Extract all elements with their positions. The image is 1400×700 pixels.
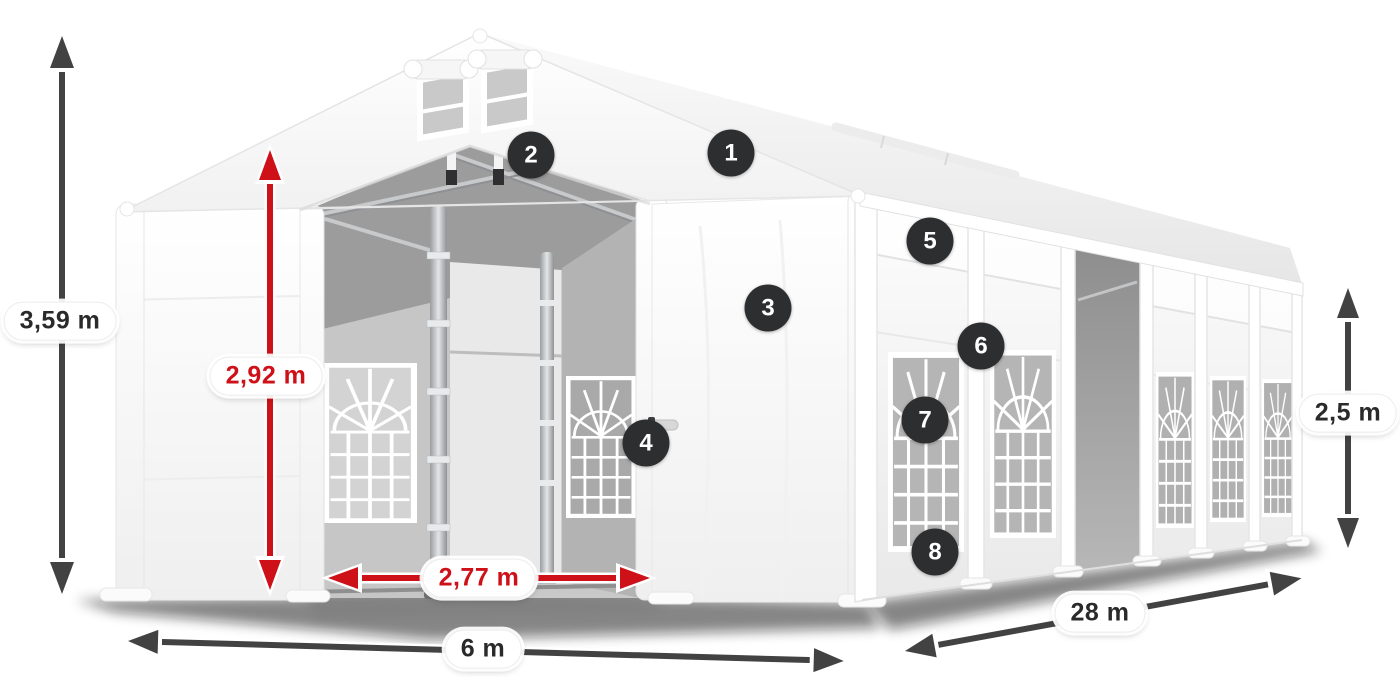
dimension-label-front-width: 6 m	[445, 630, 522, 669]
callout-badge-7: 7	[902, 397, 949, 444]
tent-dimension-diagram: 3,59 m 2,92 m 2,77 m 6 m 28 m 2,5 m 1 2 …	[0, 0, 1400, 700]
callout-badge-6: 6	[958, 323, 1005, 370]
callout-badge-2: 2	[508, 132, 555, 179]
dimension-label-entrance-width: 2,77 m	[423, 559, 536, 598]
dimension-label-side-length: 28 m	[1055, 594, 1146, 633]
dimension-label-total-height: 3,59 m	[4, 302, 117, 341]
callout-badge-5: 5	[907, 218, 954, 265]
callout-badge-4: 4	[623, 420, 670, 467]
callout-badge-8: 8	[912, 529, 959, 576]
annotation-overlay: 3,59 m 2,92 m 2,77 m 6 m 28 m 2,5 m 1 2 …	[0, 0, 1400, 700]
callout-badge-1: 1	[708, 130, 755, 177]
dimension-label-entrance-height: 2,92 m	[210, 357, 323, 396]
callout-badge-3: 3	[745, 285, 792, 332]
dimension-label-side-height: 2,5 m	[1299, 394, 1397, 433]
